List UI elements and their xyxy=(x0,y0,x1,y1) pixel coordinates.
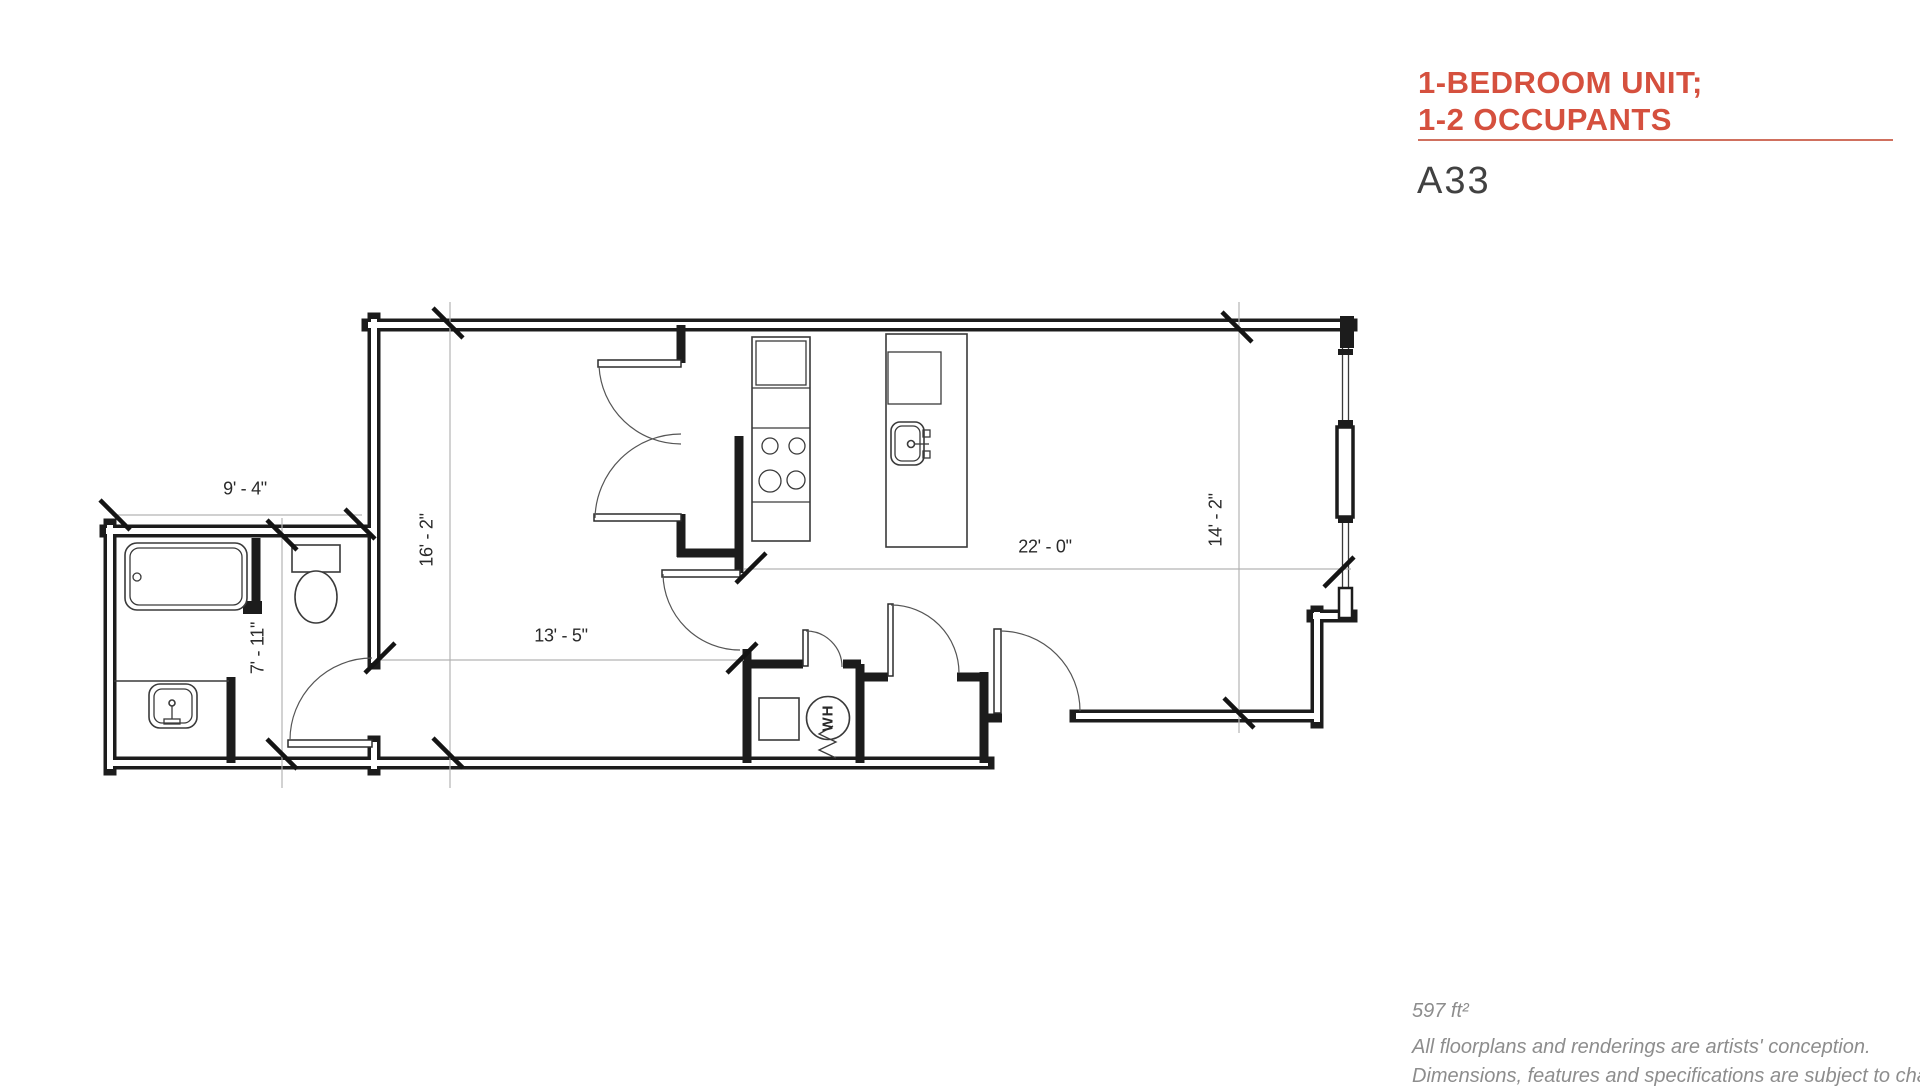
dimension-label-living-width: 22' - 0" xyxy=(1018,537,1071,558)
toilet xyxy=(292,545,340,623)
kitchen-island xyxy=(886,334,967,547)
interior-walls xyxy=(114,325,1002,763)
utility-box xyxy=(759,698,799,740)
bathroom-door-leaf xyxy=(288,740,372,747)
title-underline xyxy=(1418,139,1893,141)
disclaimer-line1: All floorplans and renderings are artist… xyxy=(1412,1036,1871,1059)
unit-plan-label: A33 xyxy=(1417,160,1491,203)
dimension-label-bath-width: 9' - 4" xyxy=(223,479,267,500)
dimension-label-bedroom-width: 13' - 5" xyxy=(534,626,587,647)
french-door-top-leaf xyxy=(598,360,681,367)
dimension-ticks xyxy=(100,308,1354,769)
window-sill xyxy=(1339,588,1352,618)
closet-door-leaf xyxy=(888,604,893,676)
bathroom-sink xyxy=(149,684,197,728)
disclaimer-line2: Dimensions, features and specifications … xyxy=(1412,1065,1920,1088)
entry-door-leaf xyxy=(994,629,1001,713)
unit-area: 597 ft² xyxy=(1412,1000,1469,1023)
window-mullion xyxy=(1338,516,1353,523)
water-heater-label: WH xyxy=(820,705,837,732)
window-mullion xyxy=(1338,349,1353,355)
utility-door-leaf xyxy=(803,630,808,666)
bathtub xyxy=(125,543,247,610)
window-corner-block xyxy=(1340,316,1354,348)
page-title-line1: 1-BEDROOM UNIT; xyxy=(1418,64,1703,101)
window-panel xyxy=(1337,427,1353,517)
dimension-label-bath-depth: 7' - 11" xyxy=(248,622,269,674)
page-title: 1-BEDROOM UNIT; 1-2 OCCUPANTS xyxy=(1418,64,1703,138)
bedroom-door-leaf xyxy=(662,570,740,577)
page-title-line2: 1-2 OCCUPANTS xyxy=(1418,101,1703,138)
dimension-label-living-depth: 14' - 2" xyxy=(1206,493,1227,546)
dimension-label-bedroom-depth: 16' - 2" xyxy=(417,513,438,566)
french-door-bottom-leaf xyxy=(594,514,681,521)
floorplan-drawing xyxy=(0,0,1920,1080)
faucet-icon xyxy=(908,441,915,448)
